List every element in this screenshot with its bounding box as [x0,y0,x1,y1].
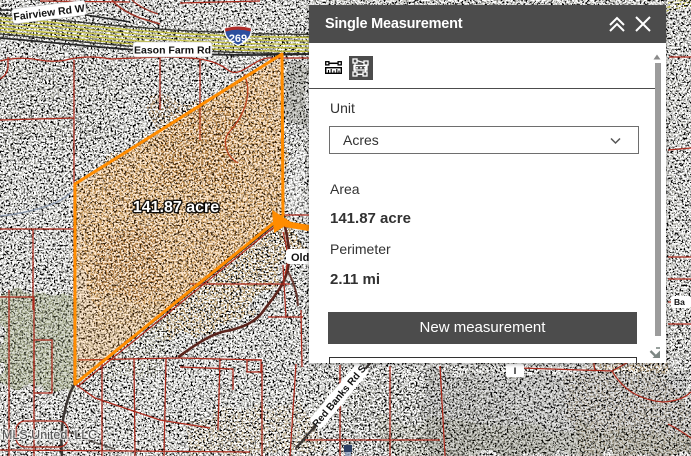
svg-text:I: I [514,366,517,376]
svg-text:269: 269 [229,33,247,45]
svg-text:Eason Farm Rd: Eason Farm Rd [134,45,211,57]
svg-text:Old: Old [291,252,309,264]
svg-text:141.87 acre: 141.87 acre [133,199,219,216]
svg-text:MLS United, LLC: MLS United, LLC [2,428,97,442]
svg-text:Ba: Ba [674,297,685,307]
